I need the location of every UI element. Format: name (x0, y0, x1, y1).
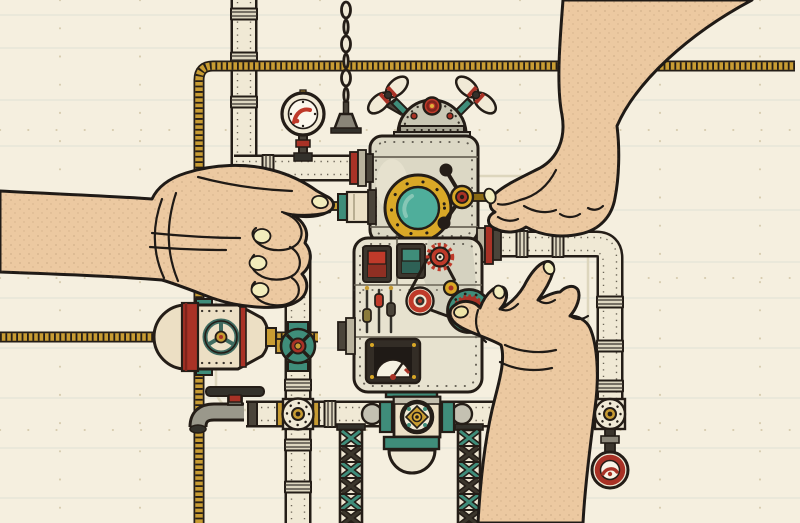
faucet-mouth (190, 425, 206, 433)
upper-left-port (350, 150, 373, 186)
gauge-stalk-band (296, 140, 310, 147)
gauge-face (289, 100, 318, 129)
cross-junction (277, 399, 319, 430)
slider-knob-2 (375, 294, 383, 307)
faucet-handle-cap (229, 395, 241, 402)
slider-bank (363, 286, 395, 332)
tank-tip-band (266, 328, 276, 346)
analog-meter (366, 339, 420, 383)
crank-ball-top (440, 164, 453, 177)
tank-thin-band (240, 307, 246, 367)
crank-ball-bottom (438, 217, 451, 230)
slider-knob-3 (387, 303, 395, 316)
illustration-stage (0, 0, 800, 523)
chain-handle-bar (331, 128, 361, 133)
gauge-stalk-base (294, 153, 312, 161)
porthole (385, 175, 451, 241)
tee-junction (595, 399, 625, 429)
steampunk-machine-illustration (0, 0, 800, 523)
tank-red-band (182, 303, 198, 371)
slider-knob-1 (363, 309, 371, 322)
lower-left-port (338, 318, 355, 354)
chain-stem (344, 102, 349, 114)
gauge-pivot (295, 119, 300, 124)
pipe-top-vertical (231, 0, 257, 180)
plunger-cap (338, 194, 347, 220)
assembly-flange-right (442, 402, 454, 432)
truss-tower-left (337, 424, 365, 523)
assembly-flange-left (380, 402, 392, 432)
red-switch (363, 246, 391, 282)
assembly-bracket (384, 437, 439, 449)
